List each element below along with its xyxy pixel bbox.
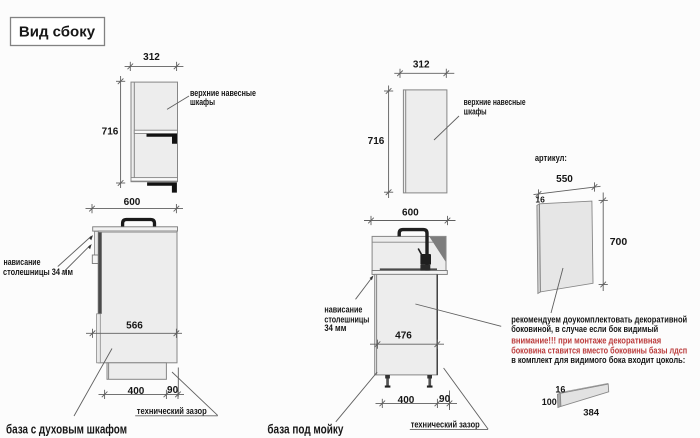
- svg-text:400: 400: [398, 395, 415, 406]
- svg-text:столешницы 34 мм: столешницы 34 мм: [3, 267, 73, 277]
- svg-text:верхние навесные: верхние навесные: [464, 97, 526, 107]
- svg-text:в комплект для видимого бока в: в комплект для видимого бока входит цоко…: [511, 355, 685, 365]
- svg-text:550: 550: [556, 174, 573, 185]
- svg-text:90: 90: [439, 394, 451, 405]
- svg-text:16: 16: [555, 385, 565, 395]
- svg-text:технический зазор: технический зазор: [137, 406, 207, 416]
- svg-text:рекомендуем доукомплектовать д: рекомендуем доукомплектовать декоративно…: [511, 315, 687, 325]
- svg-text:100: 100: [542, 397, 557, 407]
- svg-text:400: 400: [128, 386, 145, 397]
- svg-text:700: 700: [610, 236, 628, 248]
- svg-text:90: 90: [167, 385, 179, 396]
- svg-text:312: 312: [413, 59, 430, 70]
- svg-text:технический зазор: технический зазор: [411, 419, 480, 429]
- svg-text:716: 716: [368, 136, 385, 147]
- svg-text:600: 600: [402, 208, 419, 219]
- svg-text:384: 384: [583, 407, 600, 418]
- svg-text:боковиной, в случае если бок в: боковиной, в случае если бок видимый: [511, 324, 658, 334]
- svg-text:шкафы: шкафы: [190, 97, 215, 107]
- svg-text:база с духовым шкафом: база с духовым шкафом: [6, 422, 127, 437]
- svg-text:нависание: нависание: [324, 305, 362, 315]
- svg-text:566: 566: [126, 321, 143, 332]
- svg-text:шкафы: шкафы: [464, 107, 487, 117]
- svg-text:артикул:: артикул:: [535, 153, 567, 163]
- svg-text:внимание!!! при монтаже декора: внимание!!! при монтаже декоративная: [511, 336, 661, 346]
- svg-text:боковина ставится вместо боков: боковина ставится вместо боковины базы л…: [511, 345, 687, 355]
- svg-text:база под мойку: база под мойку: [267, 422, 344, 437]
- svg-text:34 мм: 34 мм: [324, 323, 346, 333]
- svg-text:нависание: нависание: [4, 257, 41, 267]
- svg-text:16: 16: [535, 194, 545, 204]
- svg-text:476: 476: [395, 331, 412, 342]
- svg-text:Вид сбоку: Вид сбоку: [19, 23, 96, 40]
- svg-text:312: 312: [143, 52, 160, 63]
- svg-text:600: 600: [124, 197, 141, 208]
- svg-text:716: 716: [102, 127, 119, 138]
